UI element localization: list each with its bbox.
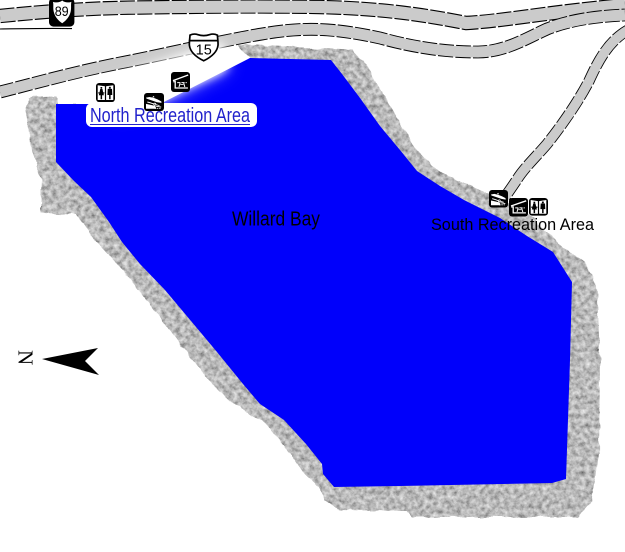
svg-text:N: N <box>14 350 38 365</box>
svg-text:15: 15 <box>196 42 212 58</box>
svg-text:North Recreation Area: North Recreation Area <box>90 105 251 127</box>
svg-text:Willard Bay: Willard Bay <box>232 208 321 231</box>
svg-text:South Recreation Area: South Recreation Area <box>431 215 595 234</box>
svg-text:89: 89 <box>55 4 69 19</box>
